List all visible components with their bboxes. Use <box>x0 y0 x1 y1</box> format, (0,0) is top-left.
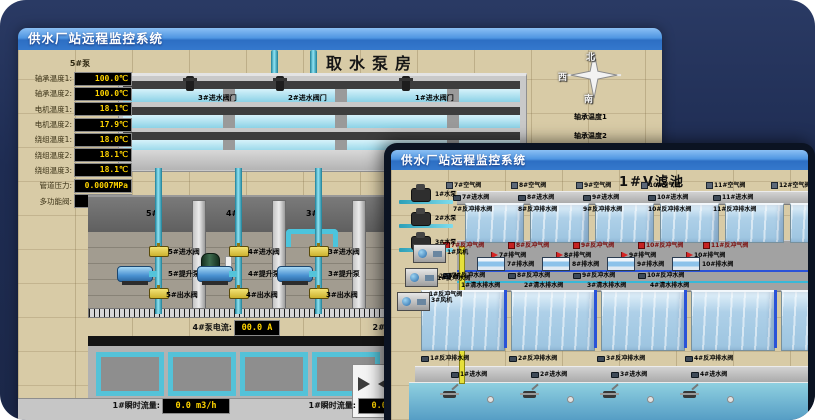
lift-pump-label: 5#提升泵 <box>168 271 200 278</box>
blower-label: 1#风机 <box>447 250 468 256</box>
backwash-drain-valve-label: 11#反冲排水阀 <box>713 207 756 213</box>
inlet-valve-label: 1#进水阀 <box>451 372 487 378</box>
pump-coupling <box>229 271 237 277</box>
backwash-drain-valve-label-text: 4#反冲排水阀 <box>694 356 733 362</box>
bypass-pipe <box>286 229 338 247</box>
valve-icon[interactable] <box>597 356 605 362</box>
air-valve-label-text: 11#空气阀 <box>714 183 745 189</box>
back-window-titlebar[interactable]: 供水厂站远程监控系统 <box>18 28 662 50</box>
panel-row: 电机温度2:17.9℃ <box>28 117 132 132</box>
feed-pipe-label: 1#反冲气阀 <box>429 292 462 298</box>
intake-valve-icon[interactable] <box>186 76 194 91</box>
clear-drain-valve-label: 1#清水排水阀 <box>461 283 500 289</box>
clear-drain-valve-label: 2#清水排水阀 <box>524 283 563 289</box>
outlet-valve-label: 5#出水阀 <box>166 292 198 299</box>
air-valve-label: 11#空气阀 <box>706 182 745 189</box>
inlet-valve-label: 4#进水阀 <box>248 249 280 256</box>
intake-valve-label: 1#进水阀门 <box>415 95 454 102</box>
inlet-valve-label: 4#进水阀 <box>691 372 727 378</box>
drain-valve-label: 7#排水阀 <box>507 262 534 268</box>
pipe-flange <box>567 396 574 403</box>
panel-row: 电机温度1:18.1℃ <box>28 102 132 117</box>
backwash-air-valve-label-text: 11#反冲气阀 <box>711 243 748 249</box>
valve-icon[interactable] <box>509 356 517 362</box>
pipe-opening <box>96 352 164 396</box>
backwash-drain-valve-label: 8#反冲排水阀 <box>518 207 557 213</box>
valve-icon[interactable] <box>713 195 721 201</box>
clear-drain-valve-label-text: 3#清水排水阀 <box>587 283 626 289</box>
backwash-drain-valve-label-text: 3#反冲排水阀 <box>606 356 645 362</box>
panel-row-value: 18.1℃ <box>74 148 132 162</box>
inlet-valve-label-text: 4#进水阀 <box>700 372 727 378</box>
cell-feed-pipe <box>594 290 597 348</box>
hidden-panel-label: 轴承温度2 <box>574 133 607 140</box>
valve-icon[interactable] <box>641 182 648 189</box>
backwash-air-valve-label-text: 10#反冲气阀 <box>646 243 683 249</box>
scene-title-intake: 取水泵房 <box>326 50 418 74</box>
feed-pipe-label: 1#反冲水阀 <box>437 276 470 282</box>
inlet-valve-label-text: 8#进水阀 <box>527 195 554 201</box>
pipe-flange <box>487 396 494 403</box>
backwash-air-valve-label: 11#反冲气阀 <box>703 242 748 249</box>
panel-row: 轴承温度2:100.0℃ <box>28 86 132 101</box>
backwash-drain-valve-label-text: 2#反冲排水阀 <box>518 356 557 362</box>
valve-icon[interactable] <box>648 195 656 201</box>
inlet-valve-label-text: 10#进水阀 <box>657 195 688 201</box>
lift-pump[interactable] <box>277 266 313 282</box>
inlet-valve-label: 5#进水阀 <box>168 249 200 256</box>
backwash-water-valve-label: 8#反冲水阀 <box>508 273 550 279</box>
front-window-title: 供水厂站远程监控系统 <box>401 153 526 167</box>
hidden-panel-label: 轴承温度1 <box>574 114 607 121</box>
backwash-water-valve-label-text: 10#反冲水阀 <box>647 273 684 279</box>
surge-tank <box>672 257 700 271</box>
panel-row-value: 18.0℃ <box>74 133 132 147</box>
monitoring-dashboard: 供水厂站远程监控系统 取水泵房 5#泵 轴承温度1:100.0℃轴承温度2:10… <box>0 0 815 420</box>
valve-icon[interactable] <box>583 195 591 201</box>
panel-row-value: 0.0007MPa <box>74 179 132 193</box>
backwash-drain-valve-label-text: 11#反冲排水阀 <box>713 207 756 213</box>
butterfly-valve-icon[interactable] <box>443 391 456 398</box>
filter-cell <box>781 290 808 351</box>
valve-icon[interactable] <box>706 182 713 189</box>
backwash-air-valve-label-text: 8#反冲气阀 <box>516 243 549 249</box>
valve-icon[interactable] <box>531 372 539 378</box>
intake-valve-label: 3#进水阀门 <box>198 95 237 102</box>
butterfly-valve-icon[interactable] <box>683 391 696 398</box>
pipe-flange <box>647 396 654 403</box>
panel-row-value: 18.1℃ <box>74 102 132 116</box>
panel-row-label: 绕组温度1: <box>28 134 72 145</box>
air-valve-label-text: 9#空气阀 <box>584 183 611 189</box>
panel-row-label: 电机温度1: <box>28 104 72 115</box>
air-valve-label: 9#空气阀 <box>576 182 611 189</box>
panel-row-value: 18.1℃ <box>74 163 132 177</box>
drain-valve-label-text: 9#排水阀 <box>637 262 664 268</box>
surge-tank <box>607 257 635 271</box>
pump-panel-rows: 轴承温度1:100.0℃轴承温度2:100.0℃电机温度1:18.1℃电机温度2… <box>28 71 132 209</box>
drain-valve-label-text: 8#排水阀 <box>572 262 599 268</box>
inlet-valve-label: 11#进水阀 <box>713 195 753 201</box>
valve-icon[interactable] <box>685 356 693 362</box>
lift-pump-label: 3#提升泵 <box>328 271 360 278</box>
filter-cell <box>601 290 685 351</box>
drain-valve-label: 10#排水阀 <box>702 262 733 268</box>
valve-icon[interactable] <box>691 372 699 378</box>
backwash-drain-valve-label-text: 10#反冲排水阀 <box>648 207 691 213</box>
panel-row-label: 管道压力: <box>28 180 72 191</box>
backwash-air-valve-icon[interactable] <box>638 242 645 249</box>
blower[interactable] <box>405 268 438 287</box>
panel-row-label: 绕组温度2: <box>28 150 72 161</box>
backwash-drain-valve-label: 2#反冲排水阀 <box>509 356 557 362</box>
panel-header: 5#泵 <box>28 58 132 69</box>
intake-valve-label: 2#进水阀门 <box>288 95 327 102</box>
panel-row-label: 电机温度2: <box>28 119 72 130</box>
backwash-drain-valve-label: 9#反冲排水阀 <box>583 207 622 213</box>
butterfly-valve-icon[interactable] <box>523 391 536 398</box>
lift-pump[interactable] <box>117 266 153 282</box>
panel-row-value: 100.0℃ <box>74 87 132 101</box>
air-valve-label: 7#空气阀 <box>446 182 481 189</box>
backwash-air-valve-icon[interactable] <box>573 242 580 249</box>
clear-drain-valve-label: 4#清水排水阀 <box>650 283 689 289</box>
inlet-valve-icon[interactable] <box>309 246 329 257</box>
panel-row: 管道压力:0.0007MPa <box>28 178 132 193</box>
butterfly-valve-icon[interactable] <box>603 391 616 398</box>
air-valve-label-text: 8#空气阀 <box>519 183 546 189</box>
backwash-air-valve-label-text: 9#反冲气阀 <box>581 243 614 249</box>
backwash-air-valve-label: 9#反冲气阀 <box>573 242 614 249</box>
backwash-drain-valve-label-text: 8#反冲排水阀 <box>518 207 557 213</box>
pump-current-label: 4#泵电流: <box>168 322 232 333</box>
pipe-flange <box>727 396 734 403</box>
backwash-drain-valve-label: 10#反冲排水阀 <box>648 207 691 213</box>
surge-tank <box>542 257 570 271</box>
cell-feed-pipe <box>774 290 777 348</box>
clear-water-pipe <box>457 281 808 283</box>
valve-icon[interactable] <box>771 182 778 189</box>
filter-cell <box>790 203 808 243</box>
valve-icon[interactable] <box>576 182 583 189</box>
clear-drain-valve-label: 3#清水排水阀 <box>587 283 626 289</box>
lift-pump-label: 4#提升泵 <box>248 271 280 278</box>
panel-row-label: 绕组温度3: <box>28 165 72 176</box>
outlet-valve-label: 4#出水阀 <box>246 292 278 299</box>
drain-valve-label-text: 10#排水阀 <box>702 262 733 268</box>
blower[interactable] <box>397 292 430 311</box>
pipe-opening <box>168 352 236 396</box>
instant-flow-value: 0.0 m3/h <box>162 398 230 414</box>
panel-row-value: 100.0℃ <box>74 72 132 86</box>
backwash-pump[interactable] <box>411 188 431 202</box>
pipe-opening <box>240 352 308 396</box>
clear-drain-valve-label-text: 2#清水排水阀 <box>524 283 563 289</box>
valve-icon[interactable] <box>421 356 429 362</box>
backwash-water-valve-label: 9#反冲水阀 <box>573 273 615 279</box>
clear-drain-valve-label-text: 4#清水排水阀 <box>650 283 689 289</box>
backwash-air-valve-label: 8#反冲气阀 <box>508 242 549 249</box>
front-channel <box>409 382 808 420</box>
inlet-valve-label-text: 11#进水阀 <box>722 195 753 201</box>
window-filter-pool: 供水厂站远程监控系统 1#V滤池 7#空气阀8#空气阀9#空气阀10#空气阀11… <box>384 143 815 420</box>
valve-icon[interactable] <box>611 372 619 378</box>
front-window-titlebar[interactable]: 供水厂站远程监控系统 <box>391 150 808 170</box>
panel-row-label: 轴承温度1: <box>28 73 72 84</box>
inlet-valve-label: 8#进水阀 <box>518 195 554 201</box>
backwash-drain-valve-label: 7#反冲排水阀 <box>453 207 492 213</box>
valve-icon[interactable] <box>446 182 453 189</box>
panel-row: 绕组温度1:18.0℃ <box>28 132 132 147</box>
cell-feed-pipe <box>684 290 687 348</box>
instant-flow-label: 1#瞬时流量: <box>292 400 356 411</box>
backwash-drain-valve-label: 1#反冲排水阀 <box>421 356 469 362</box>
back-window-title: 供水厂站远程监控系统 <box>28 31 163 46</box>
compass-north-label: 北 <box>586 50 595 63</box>
lift-pump[interactable] <box>197 266 233 282</box>
valve-icon[interactable] <box>638 273 646 279</box>
valve-icon[interactable] <box>518 195 526 201</box>
pump-coupling <box>309 271 317 277</box>
air-valve-label-text: 7#空气阀 <box>454 183 481 189</box>
pump-coupling <box>149 271 157 277</box>
filter-cell <box>691 290 775 351</box>
air-valve-label: 10#空气阀 <box>641 182 680 189</box>
panel-row-label: 多功能阀: <box>28 196 72 207</box>
valve-icon[interactable] <box>573 273 581 279</box>
panel-row: 绕组温度3:18.1℃ <box>28 163 132 178</box>
inlet-valve-label: 9#进水阀 <box>583 195 619 201</box>
inlet-valve-label-text: 2#进水阀 <box>540 372 567 378</box>
inlet-valve-label-text: 1#进水阀 <box>460 372 487 378</box>
air-valve-label-text: 12#空气阀 <box>779 183 808 189</box>
valve-icon[interactable] <box>508 273 516 279</box>
inlet-valve-label-text: 7#进水阀 <box>462 195 489 201</box>
panel-row-value: 17.9℃ <box>74 118 132 132</box>
backwash-drain-valve-label-text: 7#反冲排水阀 <box>453 207 492 213</box>
inlet-valve-label-text: 9#进水阀 <box>592 195 619 201</box>
surge-tank <box>477 257 505 271</box>
air-valve-label: 8#空气阀 <box>511 182 546 189</box>
backwash-pump-label: 1#水泵 <box>435 192 456 198</box>
blower-label: 3#风机 <box>431 298 452 304</box>
air-valve-label: 12#空气阀 <box>771 182 808 189</box>
pump-5-data-panel: 5#泵 轴承温度1:100.0℃轴承温度2:100.0℃电机温度1:18.1℃电… <box>28 58 132 209</box>
drain-valve-label: 9#排水阀 <box>637 262 664 268</box>
compass-south-label: 南 <box>584 92 593 105</box>
backwash-air-valve-icon[interactable] <box>703 242 710 249</box>
backwash-pump[interactable] <box>411 212 431 226</box>
inlet-valve-label: 2#进水阀 <box>531 372 567 378</box>
backwash-water-valve-label-text: 9#反冲水阀 <box>582 273 615 279</box>
inlet-valve-label: 3#进水阀 <box>328 249 360 256</box>
clear-drain-valve-label-text: 1#清水排水阀 <box>461 283 500 289</box>
cell-feed-pipe <box>504 290 507 348</box>
backwash-drain-valve-label-text: 1#反冲排水阀 <box>430 356 469 362</box>
panel-row: 轴承温度1:100.0℃ <box>28 71 132 86</box>
inlet-valve-label-text: 3#进水阀 <box>620 372 647 378</box>
filter-cell <box>511 290 595 351</box>
backwash-drain-valve-label: 4#反冲排水阀 <box>685 356 733 362</box>
backwash-drain-valve-label-text: 9#反冲排水阀 <box>583 207 622 213</box>
valve-icon[interactable] <box>451 372 459 378</box>
drain-valve-label: 8#排水阀 <box>572 262 599 268</box>
filter-pool-scene: 1#V滤池 7#空气阀8#空气阀9#空气阀10#空气阀11#空气阀12#空气阀7… <box>391 170 808 420</box>
intake-valve-icon[interactable] <box>402 76 410 91</box>
backwash-air-valve-icon[interactable] <box>508 242 515 249</box>
intake-valve-icon[interactable] <box>276 76 284 91</box>
inlet-valve-label: 10#进水阀 <box>648 195 688 201</box>
inlet-valve-label: 3#进水阀 <box>611 372 647 378</box>
panel-row: 绕组温度2:18.1℃ <box>28 147 132 162</box>
blower[interactable] <box>413 244 446 263</box>
outlet-valve-label: 3#出水阀 <box>326 292 358 299</box>
backwash-drain-valve-label: 3#反冲排水阀 <box>597 356 645 362</box>
compass-west-label: 西 <box>558 70 567 83</box>
instant-flow-label: 1#瞬时流量: <box>96 400 160 411</box>
drain-valve-label-text: 7#排水阀 <box>507 262 534 268</box>
inlet-valve-label: 7#进水阀 <box>453 195 489 201</box>
pump-current-value: 00.0 A <box>234 320 280 336</box>
panel-row-label: 轴承温度2: <box>28 88 72 99</box>
backwash-water-valve-label: 10#反冲水阀 <box>638 273 684 279</box>
backwash-water-valve-label-text: 8#反冲水阀 <box>517 273 550 279</box>
inlet-valve-icon[interactable] <box>229 246 249 257</box>
intake-channel <box>123 107 520 129</box>
backwash-pump-label: 2#水泵 <box>435 216 456 222</box>
inlet-valve-icon[interactable] <box>149 246 169 257</box>
backwash-air-valve-label: 10#反冲气阀 <box>638 242 683 249</box>
air-valve-label-text: 10#空气阀 <box>649 183 680 189</box>
valve-icon[interactable] <box>511 182 518 189</box>
